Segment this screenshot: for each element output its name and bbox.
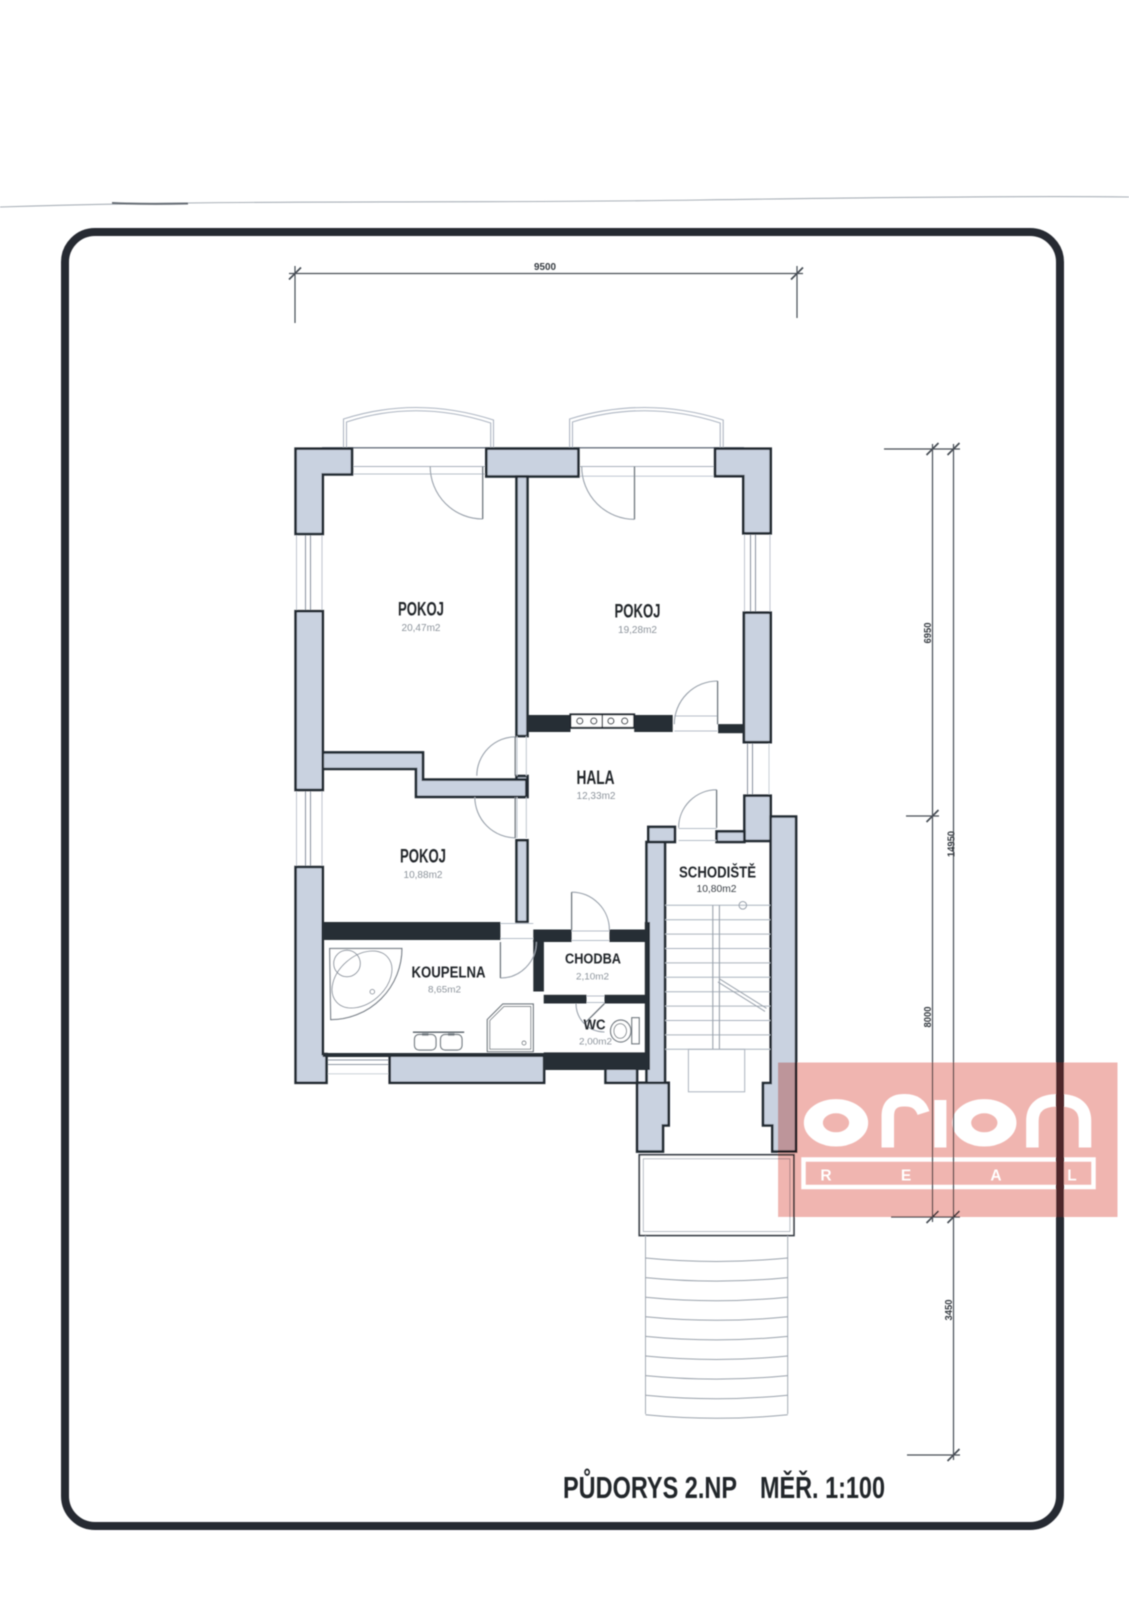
svg-text:MĚŘ. 1:100: MĚŘ. 1:100 [760, 1469, 885, 1505]
svg-text:2,00m2: 2,00m2 [579, 1037, 612, 1048]
svg-text:POKOJ: POKOJ [398, 599, 444, 621]
svg-text:HALA: HALA [577, 767, 615, 789]
svg-text:14950: 14950 [947, 831, 958, 857]
svg-text:3450: 3450 [944, 1299, 955, 1320]
svg-text:19,28m2: 19,28m2 [618, 625, 657, 636]
svg-text:POKOJ: POKOJ [615, 601, 661, 623]
svg-text:20,47m2: 20,47m2 [402, 623, 441, 634]
svg-text:9500: 9500 [534, 262, 556, 273]
svg-text:6950: 6950 [923, 622, 934, 643]
svg-text:10,80m2: 10,80m2 [697, 884, 737, 895]
svg-text:SCHODIŠTĚ: SCHODIŠTĚ [679, 864, 756, 882]
svg-text:12,33m2: 12,33m2 [577, 791, 616, 802]
svg-text:WC: WC [584, 1018, 606, 1034]
svg-text:10,88m2: 10,88m2 [404, 870, 443, 881]
svg-text:2,10m2: 2,10m2 [576, 972, 609, 983]
svg-text:PŮDORYS 2.NP: PŮDORYS 2.NP [563, 1467, 737, 1505]
svg-text:8,65m2: 8,65m2 [428, 985, 461, 996]
svg-text:8000: 8000 [923, 1006, 934, 1027]
svg-text:POKOJ: POKOJ [400, 846, 446, 868]
svg-text:KOUPELNA: KOUPELNA [412, 965, 486, 982]
svg-text:CHODBA: CHODBA [565, 952, 621, 968]
